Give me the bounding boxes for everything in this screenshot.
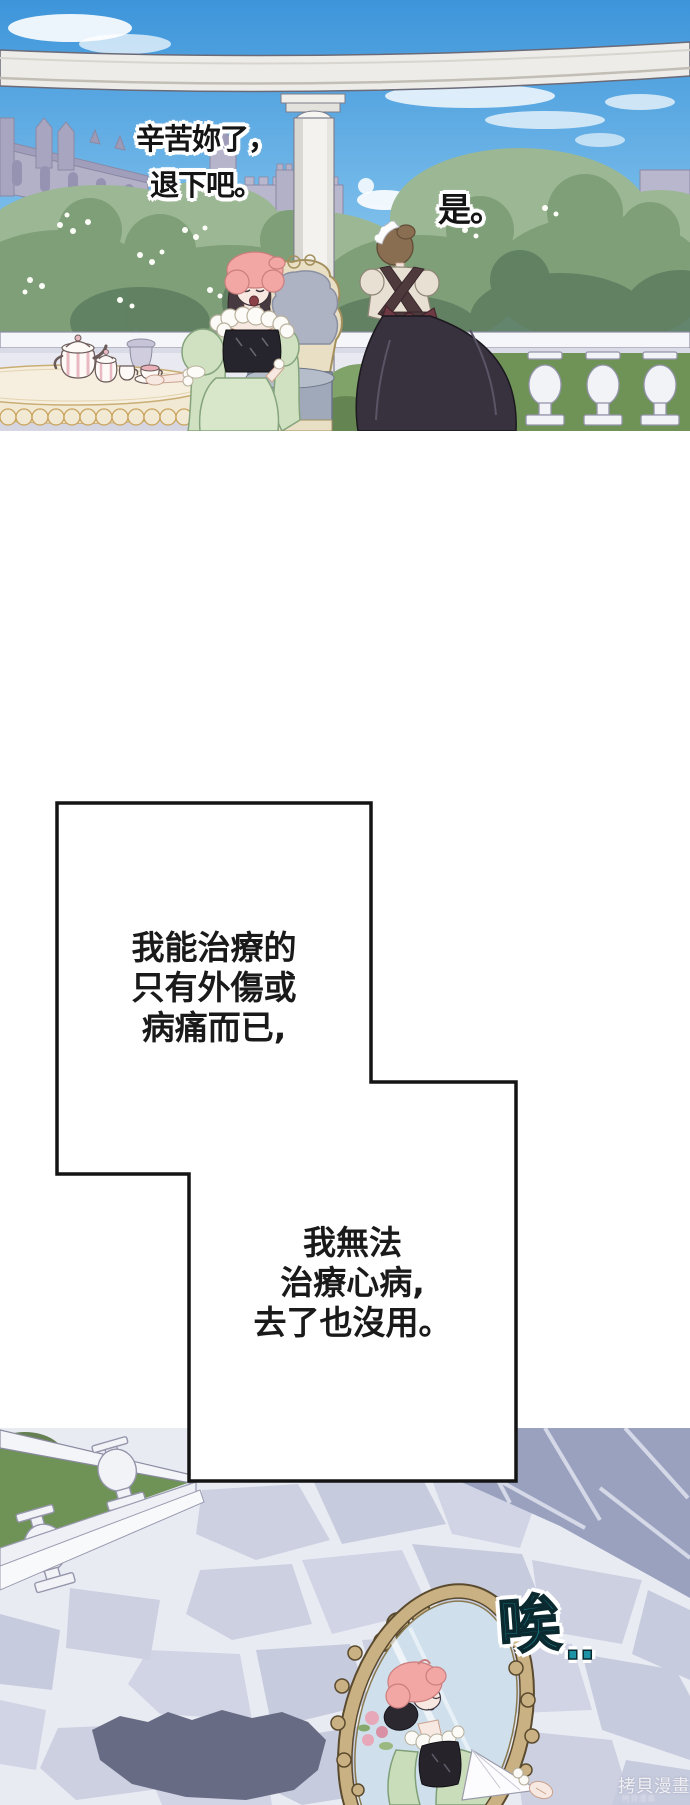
speech-line: 退下吧。	[124, 162, 288, 208]
panel-terrace-scene	[0, 0, 690, 431]
narration-line: 我能治療的	[57, 928, 371, 968]
narration-line: 去了也沒用。	[189, 1303, 516, 1343]
pink-hair	[225, 252, 285, 294]
sigh-sfx: 唉	[495, 1572, 563, 1666]
speech-line: 是。	[438, 190, 502, 230]
sigh-dots: ..	[564, 1616, 593, 1670]
site-watermark-small: 拷貝漫畫	[622, 1793, 656, 1804]
speech-maid-reply: 是。	[438, 190, 502, 230]
speech-queen-dismissal: 辛苦妳了， 退下吧。	[124, 116, 288, 208]
terrace-scene-art	[0, 0, 690, 431]
narration-line: 病痛而已,	[57, 1008, 371, 1048]
speech-box-shape	[57, 803, 516, 1481]
comic-page: 辛苦妳了， 退下吧。 是。 我能治療的 只有外傷或 病痛而已, 我無法 治療心病…	[0, 0, 690, 1805]
narration-heartache: 我無法 治療心病, 去了也沒用。	[189, 1223, 516, 1343]
narration-line: 只有外傷或	[57, 968, 371, 1008]
narration-heal-limits: 我能治療的 只有外傷或 病痛而已,	[57, 928, 371, 1048]
speech-line: 辛苦妳了，	[124, 116, 288, 162]
narration-line: 治療心病,	[189, 1263, 516, 1303]
narration-line: 我無法	[189, 1223, 516, 1263]
